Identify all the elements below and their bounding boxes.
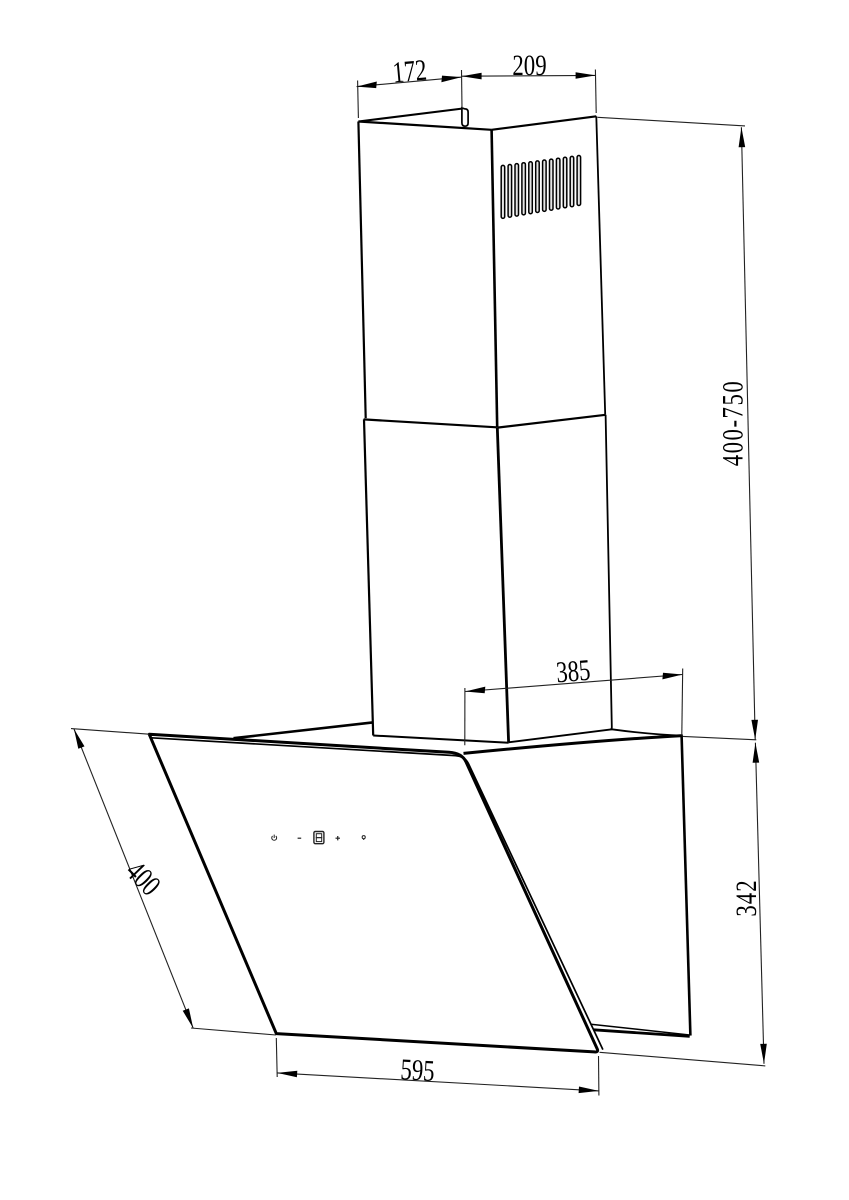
svg-text:342: 342 (729, 879, 763, 916)
svg-text:400-750: 400-750 (715, 380, 749, 467)
svg-text:595: 595 (400, 1052, 436, 1088)
svg-text:209: 209 (512, 48, 546, 82)
svg-text:172: 172 (391, 53, 428, 90)
svg-text:385: 385 (555, 653, 592, 689)
